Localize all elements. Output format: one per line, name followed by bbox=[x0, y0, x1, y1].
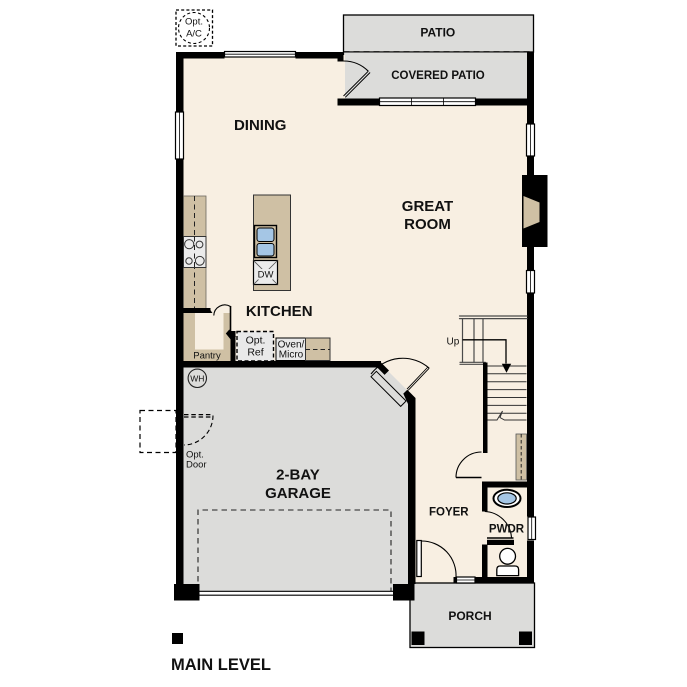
svg-text:Opt.: Opt. bbox=[246, 335, 266, 347]
svg-text:Micro: Micro bbox=[279, 350, 304, 361]
svg-text:GARAGE: GARAGE bbox=[265, 485, 331, 502]
svg-text:DW: DW bbox=[258, 270, 274, 281]
svg-text:FOYER: FOYER bbox=[429, 507, 469, 519]
svg-text:PATIO: PATIO bbox=[420, 26, 455, 40]
svg-text:GREAT: GREAT bbox=[402, 198, 453, 215]
svg-text:Up: Up bbox=[447, 337, 460, 348]
svg-text:Opt.: Opt. bbox=[185, 17, 203, 28]
svg-text:Ref: Ref bbox=[247, 347, 263, 359]
svg-text:PWDR: PWDR bbox=[489, 523, 525, 535]
svg-text:MAIN LEVEL: MAIN LEVEL bbox=[171, 656, 271, 674]
svg-text:A/C: A/C bbox=[186, 29, 202, 40]
svg-text:WH: WH bbox=[190, 374, 204, 384]
svg-text:2-BAY: 2-BAY bbox=[276, 467, 320, 484]
svg-text:KITCHEN: KITCHEN bbox=[246, 303, 313, 320]
svg-text:DINING: DINING bbox=[234, 117, 287, 134]
svg-text:PORCH: PORCH bbox=[448, 609, 491, 623]
svg-text:Door: Door bbox=[186, 460, 207, 471]
svg-text:Pantry: Pantry bbox=[193, 351, 221, 362]
svg-text:COVERED PATIO: COVERED PATIO bbox=[391, 70, 485, 82]
svg-text:ROOM: ROOM bbox=[404, 216, 451, 233]
